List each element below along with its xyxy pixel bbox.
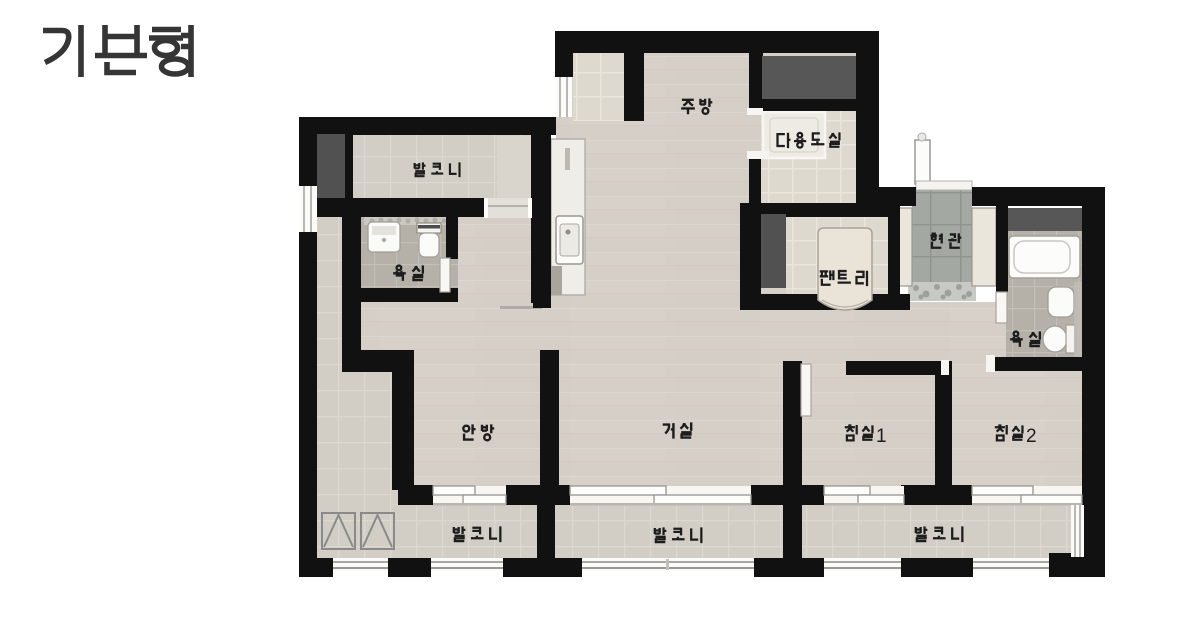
svg-text:2: 2 [1026,426,1037,447]
svg-text:1: 1 [876,426,887,447]
